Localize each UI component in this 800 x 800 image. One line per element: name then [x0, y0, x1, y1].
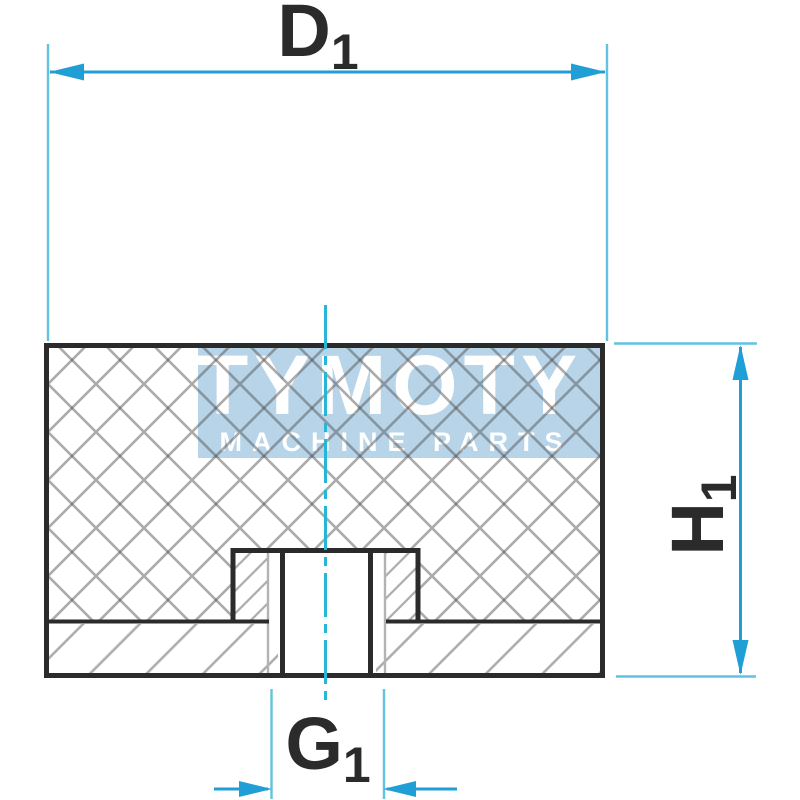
plate-hatch-right	[376, 624, 602, 675]
plate-hatch-left	[47, 624, 278, 675]
drawing-canvas: TYMOTY MACHINE PARTS D1	[0, 0, 800, 800]
bushing-hatch-right	[384, 550, 418, 621]
bushing-hatch-left	[234, 550, 269, 621]
technical-drawing: TYMOTY MACHINE PARTS D1	[0, 0, 800, 800]
